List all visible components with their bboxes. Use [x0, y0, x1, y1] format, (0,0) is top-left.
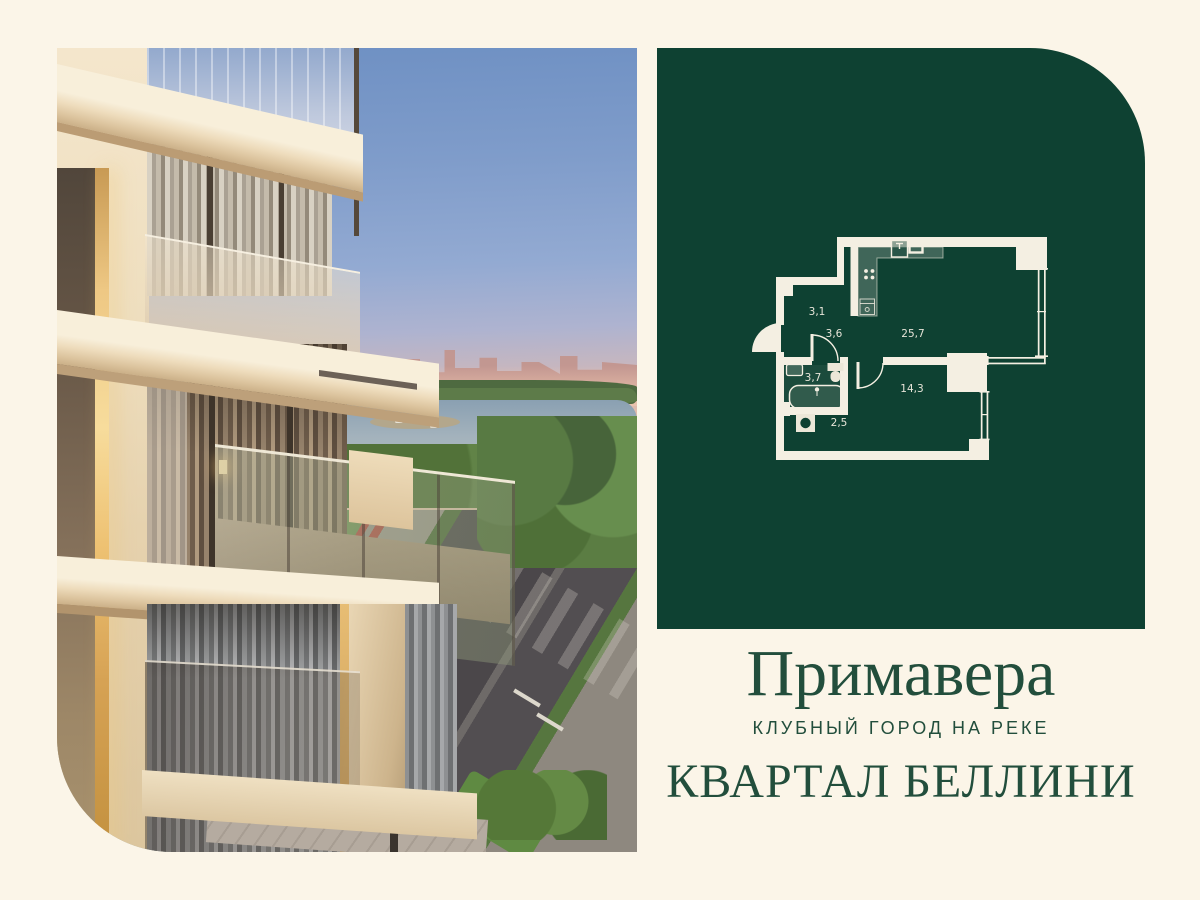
- room-area-label-laundry: 2,5: [831, 417, 848, 429]
- wall-closet: [837, 240, 844, 282]
- facade-side-wall: [57, 168, 95, 852]
- wall-entry: [776, 277, 844, 285]
- room-area-label-kitchen-living: 25,7: [901, 328, 924, 340]
- windows: [980, 268, 1049, 440]
- wall-bedroom: [883, 357, 947, 365]
- floor-plan-panel: 3,1 3,6 25,7 3,7 14,3 2,5: [657, 48, 1145, 629]
- entry-door: [752, 323, 781, 352]
- toilet-tank-icon: [828, 363, 844, 371]
- bushes: [477, 770, 607, 840]
- quarter-name: КВАРТАЛ БЕЛЛИНИ: [657, 754, 1145, 809]
- ad-banner: 3,1 3,6 25,7 3,7 14,3 2,5 Примавера КЛУБ…: [0, 0, 1200, 900]
- wall-bath-top: [784, 357, 812, 365]
- wall-kitchen: [851, 240, 859, 316]
- terrace-privacy-screen: [349, 450, 413, 530]
- wall-bottom: [776, 451, 978, 460]
- gold-pilaster: [95, 168, 109, 852]
- project-title: Примавера: [657, 640, 1145, 707]
- room-area-label-corridor: 3,6: [826, 328, 843, 340]
- wall-column: [947, 353, 987, 392]
- wall-corner-top-right: [1016, 237, 1047, 270]
- bath-door-leaf: [811, 334, 814, 361]
- room-area-label-hallway: 3,1: [809, 306, 826, 318]
- bath-sink-icon: [787, 365, 803, 376]
- wall-left-upper: [776, 277, 784, 325]
- wall-corner-bottom-right: [969, 439, 989, 460]
- branding-block: Примавера КЛУБНЫЙ ГОРОД НА РЕКЕ КВАРТАЛ …: [657, 640, 1145, 809]
- room-area-label-bedroom: 14,3: [900, 383, 923, 395]
- wall-nib: [783, 285, 793, 296]
- lower-floor-window-right: [405, 604, 457, 814]
- room-area-label-bathroom: 3,7: [805, 372, 822, 384]
- building-photo: [57, 48, 637, 852]
- walls: [776, 237, 1047, 460]
- floor-plan: 3,1 3,6 25,7 3,7 14,3 2,5: [657, 48, 1145, 629]
- bedroom-door-arc: [858, 363, 883, 388]
- kitchen-fixtures: [858, 241, 943, 317]
- bedroom-door-leaf: [857, 362, 860, 389]
- project-subtitle: КЛУБНЫЙ ГОРОД НА РЕКЕ: [657, 718, 1145, 739]
- wall-top: [837, 237, 1047, 247]
- toilet-bowl-icon: [831, 371, 841, 382]
